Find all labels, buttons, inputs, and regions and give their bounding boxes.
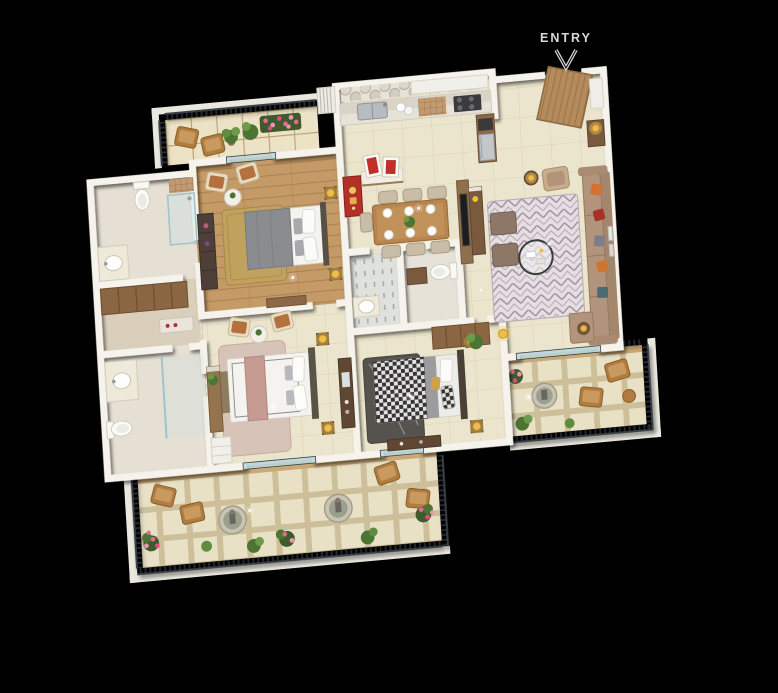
white-shelf	[211, 437, 232, 465]
cushion	[594, 235, 606, 246]
vanity-basin	[105, 360, 139, 402]
vanity-basin	[98, 245, 129, 281]
wall-frame	[608, 226, 613, 240]
mosaic-wall	[169, 177, 194, 193]
floor-plan-render: ENTRY	[0, 0, 778, 693]
shoe-cabinet	[589, 78, 604, 109]
ottoman	[490, 211, 517, 235]
balcony-chair	[579, 387, 604, 408]
entry-label: ENTRY	[540, 31, 592, 45]
counter-ledge	[407, 267, 428, 285]
balcony-top-chair	[174, 126, 199, 149]
service-shaft	[317, 87, 336, 114]
ganesha-panel	[343, 176, 363, 217]
mosaic-counter	[418, 96, 447, 116]
pink-throw	[244, 356, 267, 421]
dining-table	[372, 199, 449, 245]
cushion	[590, 183, 603, 196]
nightstand-lamp	[469, 418, 485, 434]
console-lamp	[587, 120, 605, 147]
nightstand-lamp	[328, 266, 344, 282]
cushion	[597, 287, 608, 298]
nightstand-lamp	[320, 420, 336, 436]
sink	[357, 102, 387, 121]
armchair	[228, 317, 251, 337]
nightstand-lamp	[323, 185, 339, 201]
vanity-basin	[353, 296, 380, 318]
side-table-lamp	[577, 322, 589, 335]
tall-unit-fridge	[476, 114, 497, 163]
armchair	[542, 166, 570, 192]
master-bed	[227, 347, 320, 426]
wall-frame	[609, 244, 614, 256]
glass-shower	[168, 193, 197, 245]
microwave-icon	[478, 118, 493, 131]
floor-plan-scene: ENTRY	[0, 0, 778, 693]
glass-partition	[162, 353, 209, 438]
armchair	[205, 172, 228, 193]
dresser	[159, 317, 193, 334]
hob	[453, 94, 481, 112]
nightstand-lamp	[315, 331, 331, 347]
ottoman	[492, 243, 519, 267]
patterned-bed	[373, 349, 468, 427]
grey-bed	[244, 202, 329, 273]
